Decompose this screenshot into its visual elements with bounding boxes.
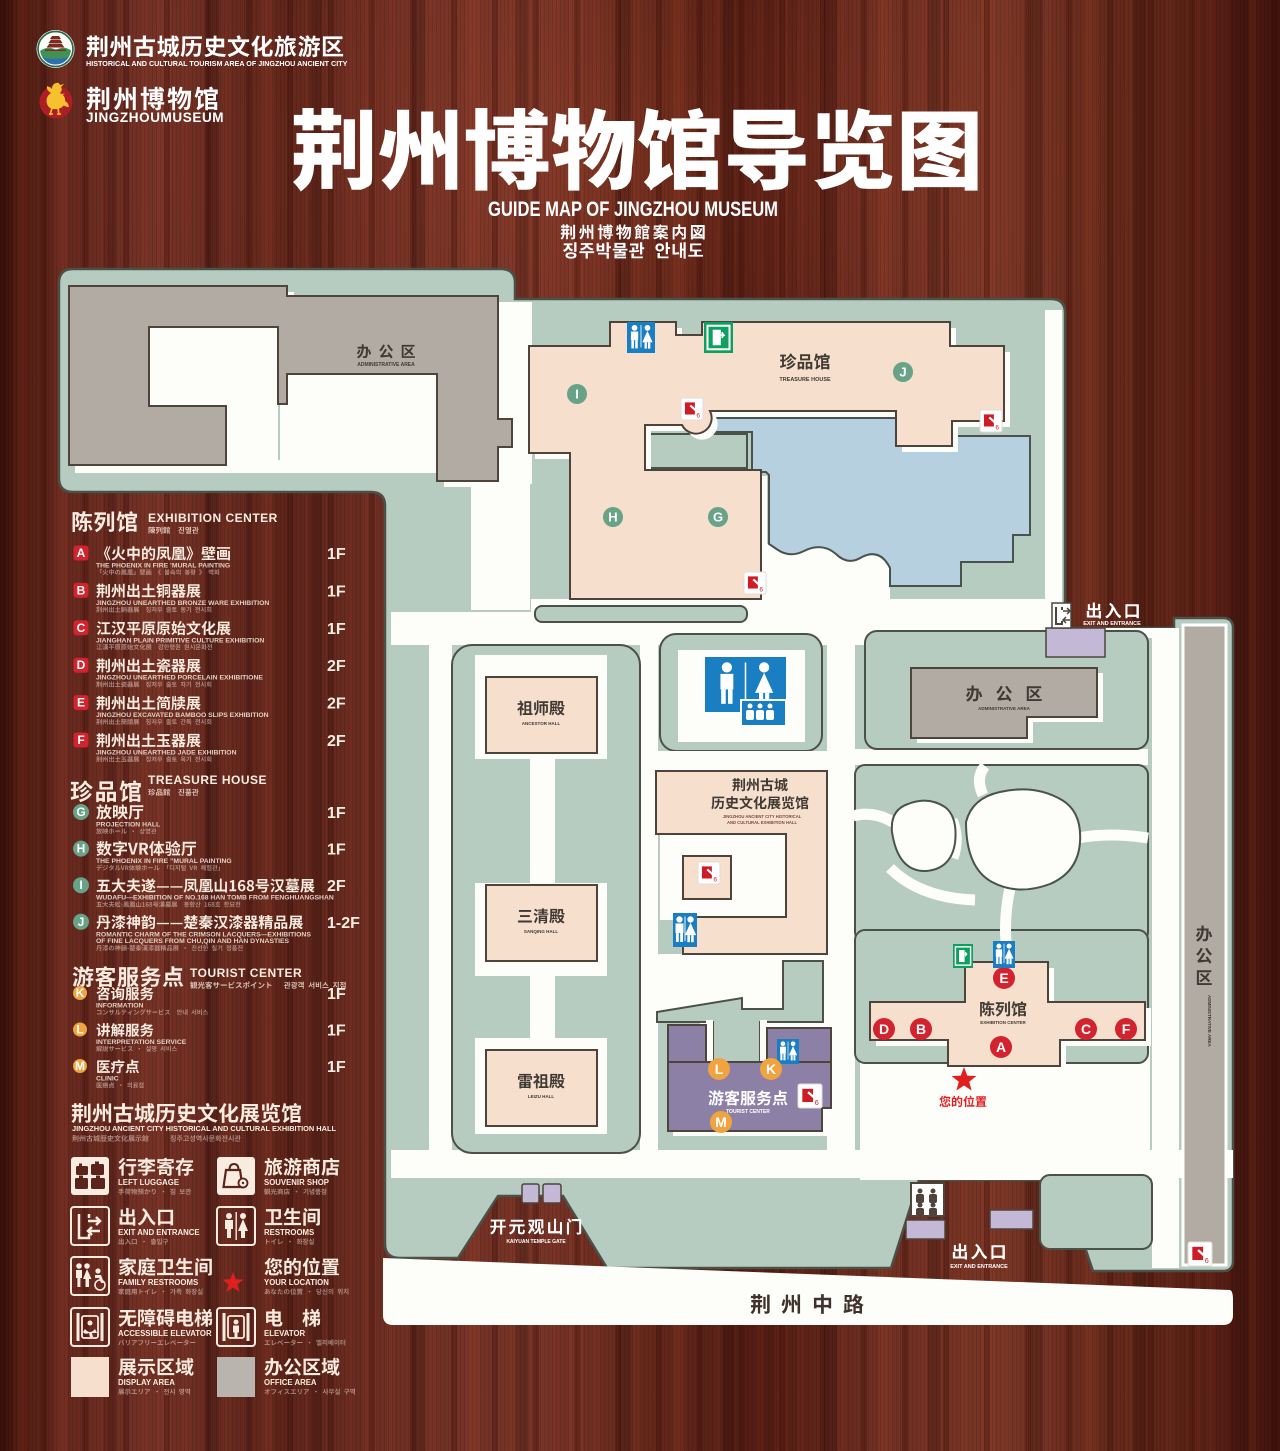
svg-text:ACCESSIBLE ELEVATOR: ACCESSIBLE ELEVATOR — [118, 1329, 212, 1338]
svg-text:6: 6 — [713, 876, 717, 883]
svg-text:KAIYUAN TEMPLE GATE: KAIYUAN TEMPLE GATE — [506, 1239, 566, 1245]
svg-text:ELEVATOR: ELEVATOR — [264, 1329, 306, 1338]
svg-text:TREASURE HOUSE: TREASURE HOUSE — [779, 377, 831, 383]
svg-text:6: 6 — [1205, 1256, 1209, 1265]
svg-text:1F: 1F — [327, 621, 346, 638]
svg-text:EXHIBITION CENTER: EXHIBITION CENTER — [148, 511, 278, 525]
svg-text:JINGZHOU EXCAVATED BAMBOO SLIP: JINGZHOU EXCAVATED BAMBOO SLIPS EXHIBITI… — [96, 712, 269, 719]
svg-text:D: D — [879, 1021, 889, 1037]
svg-text:FAMILY RESTROOMS: FAMILY RESTROOMS — [118, 1278, 198, 1287]
svg-text:EXIT AND ENTRANCE: EXIT AND ENTRANCE — [118, 1228, 200, 1237]
svg-text:1F: 1F — [327, 1059, 346, 1076]
svg-text:C: C — [1081, 1021, 1091, 1037]
svg-text:6: 6 — [696, 412, 700, 419]
svg-text:E: E — [999, 970, 1008, 986]
svg-text:SANQING HALL: SANQING HALL — [524, 929, 559, 934]
svg-text:A: A — [996, 1039, 1006, 1055]
svg-text:THE PHOENIX IN FIRE ”MURAL PAI: THE PHOENIX IN FIRE ”MURAL PAINTING — [96, 858, 232, 865]
svg-text:1F: 1F — [327, 842, 346, 859]
svg-text:2F: 2F — [327, 733, 346, 750]
svg-text:6: 6 — [815, 1098, 819, 1107]
svg-text:2F: 2F — [327, 878, 346, 895]
svg-text:G: G — [713, 510, 723, 525]
svg-text:TREASURE HOUSE: TREASURE HOUSE — [148, 773, 267, 787]
svg-text:M: M — [715, 1114, 727, 1130]
svg-text:PROJECTION HALL: PROJECTION HALL — [96, 822, 160, 829]
svg-text:K: K — [766, 1061, 776, 1077]
svg-text:EXHIBITION CENTER: EXHIBITION CENTER — [980, 1020, 1026, 1025]
svg-text:E: E — [77, 696, 85, 710]
svg-text:C: C — [77, 621, 86, 635]
svg-text:LEIZU HALL: LEIZU HALL — [528, 1094, 554, 1099]
svg-text:B: B — [916, 1021, 926, 1037]
svg-text:1F: 1F — [327, 986, 346, 1003]
svg-text:AND CULTURAL EXHIBITION HALL: AND CULTURAL EXHIBITION HALL — [727, 820, 798, 825]
svg-text:INFORMATION: INFORMATION — [96, 1003, 144, 1010]
svg-text:1F: 1F — [327, 546, 346, 563]
svg-text:TOURIST CENTER: TOURIST CENTER — [190, 966, 302, 980]
svg-text:THE PHOENIX IN FIRE ’MURAL PAI: THE PHOENIX IN FIRE ’MURAL PAINTING — [96, 563, 230, 570]
svg-text:EXIT AND ENTRANCE: EXIT AND ENTRANCE — [950, 1264, 1008, 1270]
svg-text:M: M — [75, 1059, 85, 1073]
svg-text:ADMINISTRATIVE AREA: ADMINISTRATIVE AREA — [1207, 995, 1212, 1048]
svg-text:JINGZHOUMUSEUM: JINGZHOUMUSEUM — [86, 110, 224, 125]
svg-text:TOURIST CENTER: TOURIST CENTER — [726, 1109, 770, 1115]
svg-text:JIANGHAN PLAIN PRIMITIVE CULTU: JIANGHAN PLAIN PRIMITIVE CULTURE EXHIBIT… — [96, 637, 264, 644]
svg-text:RESTROOMS: RESTROOMS — [264, 1228, 314, 1237]
svg-text:ANCESTOR HALL: ANCESTOR HALL — [522, 721, 561, 726]
svg-text:B: B — [77, 583, 86, 597]
svg-text:F: F — [77, 733, 84, 747]
svg-text:OF FINE LACQUERS FROM CHU,QIN: OF FINE LACQUERS FROM CHU,QIN AND HAN DY… — [96, 938, 290, 945]
svg-text:2F: 2F — [327, 696, 346, 713]
svg-text:OFFICE AREA: OFFICE AREA — [264, 1378, 317, 1387]
svg-text:ADMINISTRATIVE AREA: ADMINISTRATIVE AREA — [978, 706, 1031, 711]
svg-text:G: G — [76, 805, 85, 819]
svg-text:I: I — [79, 878, 82, 892]
svg-text:YOUR LOCATION: YOUR LOCATION — [264, 1278, 329, 1287]
svg-text:JINGZHOU ANCIENT CITY HISTORIC: JINGZHOU ANCIENT CITY HISTORICAL — [723, 814, 802, 819]
svg-text:ADMINISTRATIVE AREA: ADMINISTRATIVE AREA — [357, 362, 415, 368]
svg-text:F: F — [1122, 1021, 1131, 1037]
svg-text:J: J — [78, 915, 85, 929]
svg-text:D: D — [77, 658, 86, 672]
svg-text:INTERPRETATION SERVICE: INTERPRETATION SERVICE — [96, 1039, 187, 1046]
svg-text:JINGZHOU UNEARTHED PORCELAIN E: JINGZHOU UNEARTHED PORCELAIN EXHIBITIONE — [96, 675, 263, 682]
svg-text:2F: 2F — [327, 658, 346, 675]
svg-text:1F: 1F — [327, 805, 346, 822]
svg-text:LEFT LUGGAGE: LEFT LUGGAGE — [118, 1178, 179, 1187]
svg-text:SOUVENIR SHOP: SOUVENIR SHOP — [264, 1178, 329, 1187]
svg-text:6: 6 — [995, 424, 999, 431]
svg-text:L: L — [715, 1061, 724, 1077]
svg-text:JINGZHOU ANCIENT CITY HISTORIC: JINGZHOU ANCIENT CITY HISTORICAL AND CUL… — [72, 1124, 336, 1133]
svg-text:A: A — [77, 546, 86, 560]
svg-text:H: H — [77, 842, 86, 856]
svg-text:EXIT AND ENTRANCE: EXIT AND ENTRANCE — [1083, 621, 1141, 627]
svg-text:6: 6 — [759, 586, 763, 593]
svg-text:1F: 1F — [327, 1023, 346, 1040]
svg-text:GUIDE MAP OF JINGZHOU MUSEUM: GUIDE MAP OF JINGZHOU MUSEUM — [488, 198, 778, 221]
svg-text:H: H — [608, 510, 617, 525]
svg-text:L: L — [76, 1023, 83, 1037]
svg-text:1-2F: 1-2F — [327, 915, 360, 932]
svg-text:CLINIC: CLINIC — [96, 1076, 119, 1083]
svg-text:WUDAFU—EXHIBITION OF NO.168 HA: WUDAFU—EXHIBITION OF NO.168 HAN TOMB FRO… — [96, 895, 334, 902]
svg-text:HISTORICAL AND CULTURAL TOURIS: HISTORICAL AND CULTURAL TOURISM AREA OF … — [86, 59, 348, 68]
svg-text:I: I — [575, 387, 579, 402]
svg-text:1F: 1F — [327, 583, 346, 600]
svg-text:J: J — [899, 365, 906, 380]
svg-text:K: K — [76, 986, 85, 1000]
svg-text:JINGZHOU UNEARTHED JADE EXHIBI: JINGZHOU UNEARTHED JADE EXHIBITION — [96, 750, 237, 757]
svg-text:DISPLAY AREA: DISPLAY AREA — [118, 1378, 175, 1387]
svg-text:JINGZHOU UNEARTHED BRONZE WARE: JINGZHOU UNEARTHED BRONZE WARE EXHIBITIO… — [96, 600, 269, 607]
